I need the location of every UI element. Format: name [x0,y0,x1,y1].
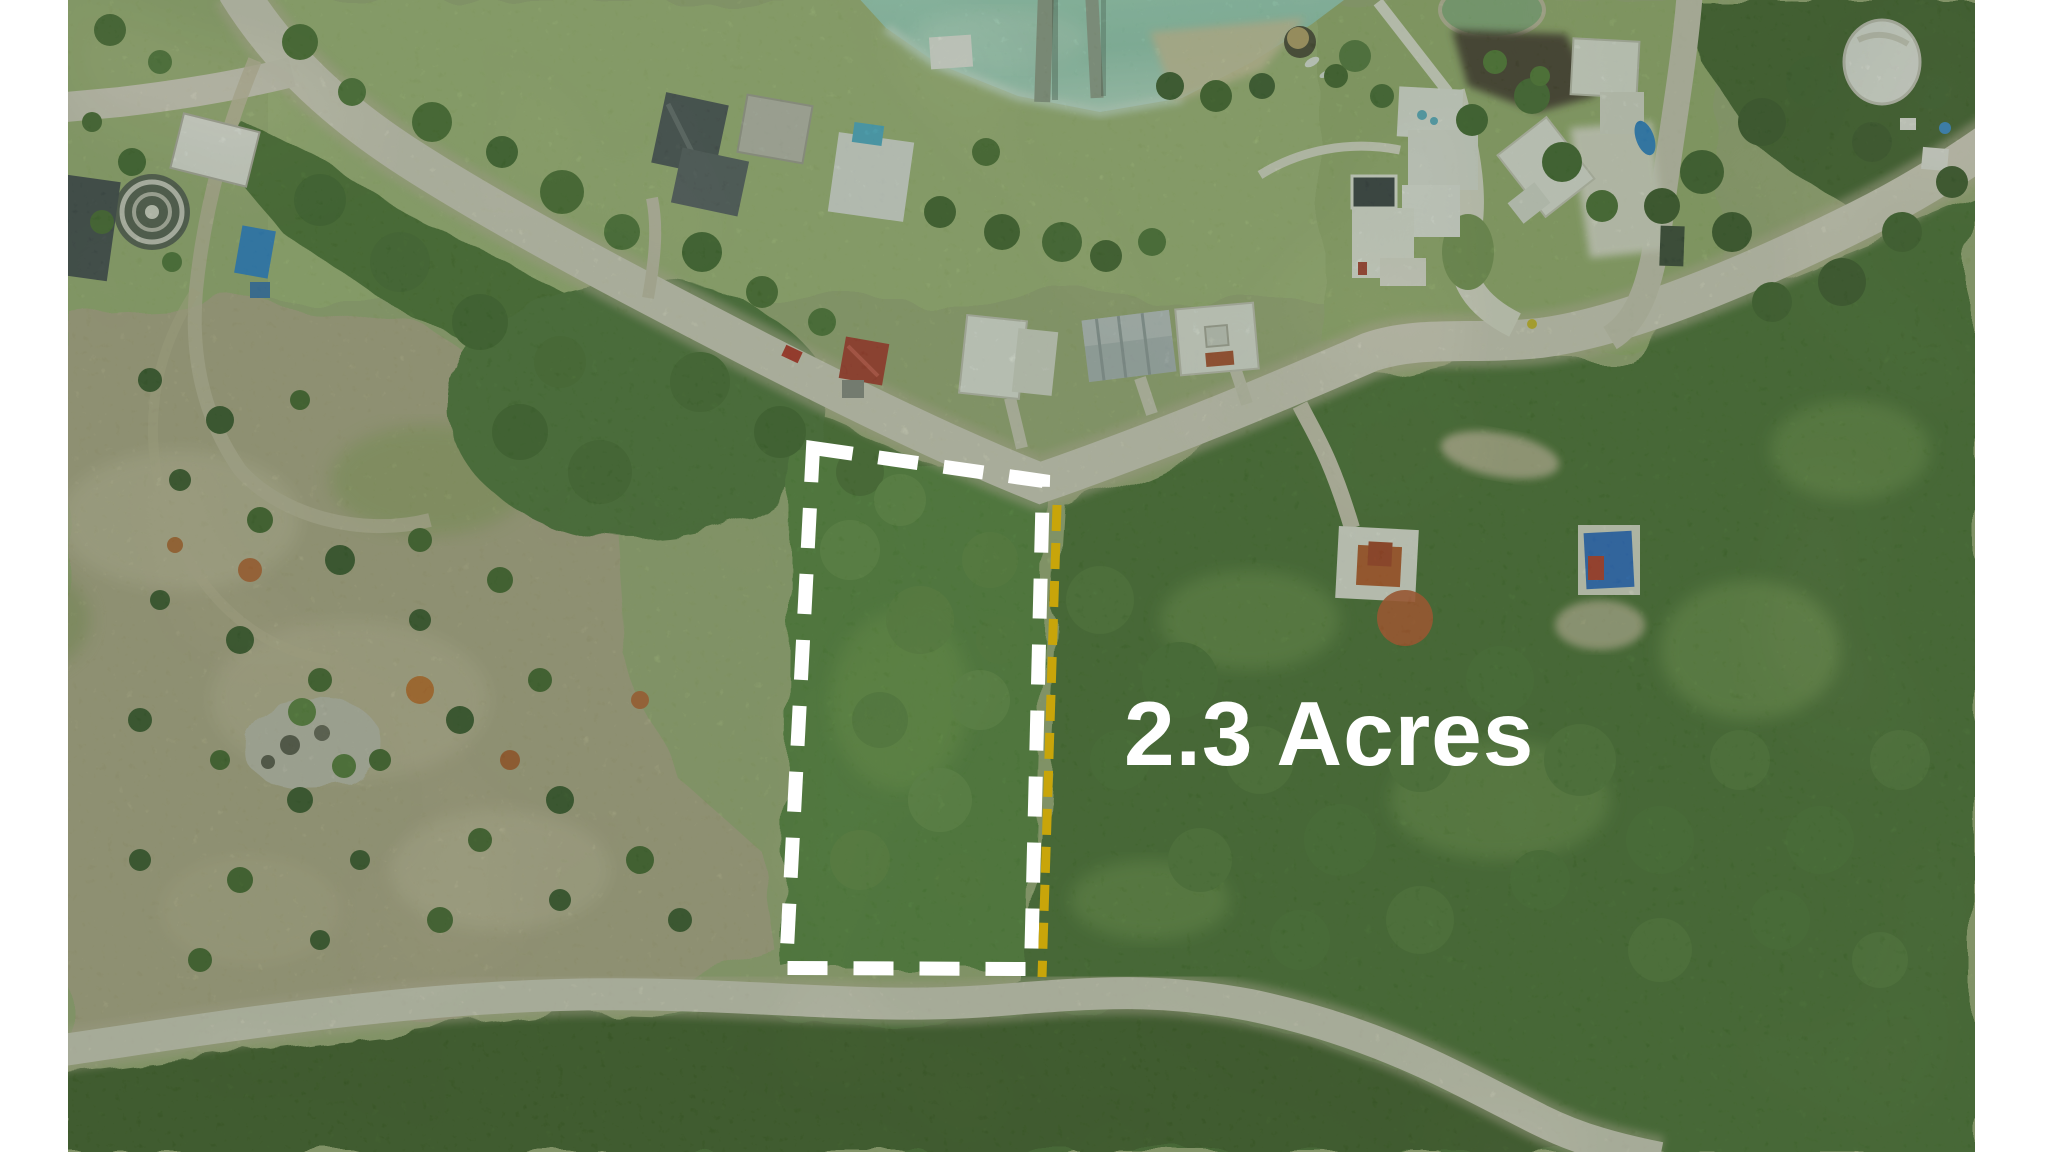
letterbox-left [0,0,68,1152]
acreage-label: 2.3 Acres [1124,684,1534,785]
photo-area: 2.3 Acres [0,0,2010,1152]
photo-canvas: 2.3 Acres [0,0,2048,1152]
letterbox-right [1975,0,2048,1152]
aerial-property-photo: 2.3 Acres [0,0,2048,1152]
grain-mottle [68,0,1975,1152]
